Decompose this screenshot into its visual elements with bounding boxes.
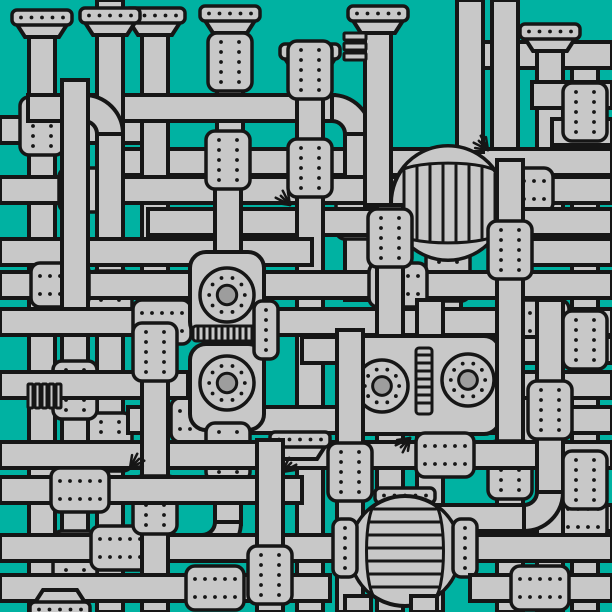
- pipe-coupling: [368, 209, 412, 267]
- pipe-vertical: [457, 0, 483, 152]
- pipe-coupling: [208, 33, 252, 91]
- ribbed-riser: [416, 348, 432, 414]
- pipe-coupling: [288, 139, 332, 197]
- pipe-coupling: [206, 131, 250, 189]
- pipe-coupling: [186, 566, 244, 610]
- pipe-coupling: [248, 546, 292, 604]
- pipe-end-cap: [30, 590, 90, 612]
- pipe-end-cap: [520, 24, 580, 51]
- pipe-end-cap: [12, 10, 72, 37]
- pipe-maze-illustration: [0, 0, 612, 612]
- gauge-dial: [200, 356, 254, 410]
- pipe-coupling: [133, 323, 177, 381]
- pipe-end-cap: [80, 8, 140, 35]
- pipe-coupling: [328, 443, 372, 501]
- gauge-dial: [200, 268, 254, 322]
- pipe-flange: [333, 519, 357, 577]
- pipe-coupling: [288, 41, 332, 99]
- pipe-coupling: [563, 311, 607, 369]
- pipe-horizontal: [520, 239, 612, 265]
- pipe-coupling: [563, 83, 607, 141]
- pipe-flange: [453, 519, 477, 577]
- pipe-horizontal: [0, 239, 312, 265]
- storage-tank: [350, 496, 460, 606]
- pipe-horizontal: [0, 535, 352, 561]
- gauge-dial: [442, 354, 494, 406]
- pipe-end-cap: [200, 6, 260, 33]
- pipe-vertical: [411, 596, 437, 612]
- pipe-coupling: [51, 468, 109, 512]
- pipe-coupling: [563, 451, 607, 509]
- pipe-vertical: [365, 10, 391, 205]
- pipe-vertical: [492, 0, 518, 162]
- pipe-horizontal: [458, 535, 612, 561]
- pipe-coupling: [511, 566, 569, 610]
- pipe-vertical: [345, 596, 371, 612]
- pipe-coupling: [488, 221, 532, 279]
- cooling-fins: [344, 33, 366, 60]
- pipe-end-cap: [348, 6, 408, 33]
- pipe-coupling: [528, 381, 572, 439]
- pipe-flange: [254, 301, 278, 359]
- pipe-coupling: [416, 433, 474, 477]
- ribbed-band: [193, 326, 261, 341]
- cooling-fins: [28, 384, 61, 408]
